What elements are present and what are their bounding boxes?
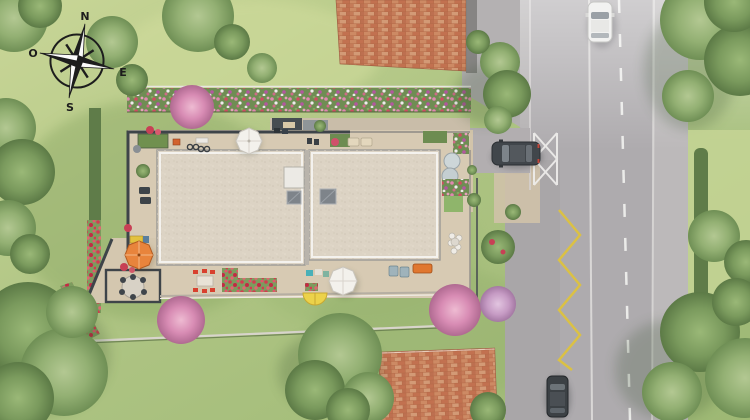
compass-label-east: E bbox=[119, 66, 127, 79]
cushion-seat bbox=[315, 269, 322, 275]
shrub bbox=[481, 230, 515, 264]
planter bbox=[423, 131, 447, 143]
tree-pink-flowering bbox=[429, 284, 481, 336]
lounger bbox=[361, 138, 372, 146]
lounger-dark bbox=[139, 187, 150, 194]
rooftop-access bbox=[284, 167, 304, 188]
flowerbed-red bbox=[305, 283, 318, 291]
flowerbed-northeast bbox=[453, 133, 469, 154]
neighbor-roof-north bbox=[336, 0, 466, 71]
chair bbox=[282, 129, 288, 134]
flowerbed-east bbox=[442, 179, 469, 196]
tree bbox=[86, 16, 138, 68]
bench-orange bbox=[413, 264, 432, 273]
lawn-pocket bbox=[444, 196, 463, 212]
red-flowers bbox=[501, 250, 506, 255]
skylight bbox=[320, 189, 336, 204]
tree-pink-flowering bbox=[157, 296, 205, 344]
lounger-dark bbox=[140, 197, 151, 204]
main-building bbox=[157, 150, 440, 265]
shrub bbox=[467, 165, 477, 175]
red-flowers bbox=[120, 263, 128, 271]
lounger-gray bbox=[389, 266, 398, 276]
table bbox=[283, 122, 295, 128]
shrub bbox=[505, 204, 521, 220]
roof-right-texture bbox=[309, 150, 440, 260]
tree bbox=[466, 30, 490, 54]
red-flowers bbox=[155, 129, 161, 135]
car-parked-drive bbox=[491, 140, 543, 170]
grill-covered bbox=[143, 236, 149, 243]
chair bbox=[274, 128, 280, 133]
chair bbox=[307, 138, 312, 144]
chair bbox=[314, 139, 319, 145]
tree bbox=[662, 70, 714, 122]
car-white-driving bbox=[586, 2, 618, 48]
umbrella-white-north bbox=[236, 128, 262, 156]
shrub bbox=[247, 53, 277, 83]
potted-tree bbox=[314, 120, 326, 132]
tree bbox=[484, 106, 512, 134]
cushion-seat bbox=[306, 270, 313, 276]
red-flowers bbox=[124, 224, 132, 232]
flowerbed-red bbox=[222, 268, 238, 292]
lounger bbox=[348, 138, 359, 146]
tree bbox=[46, 286, 98, 338]
flowerbed-red bbox=[238, 278, 277, 292]
compass-label-south: S bbox=[66, 101, 74, 114]
site-plan-svg: N O E S bbox=[0, 0, 750, 420]
skylight bbox=[287, 191, 301, 204]
planter-pot bbox=[133, 145, 141, 153]
lounger-gray bbox=[400, 267, 409, 277]
potted-tree bbox=[136, 164, 150, 178]
red-flowers bbox=[489, 239, 495, 245]
tree-lilac-flowering bbox=[480, 286, 516, 322]
roof-joint bbox=[305, 150, 309, 265]
bench-white bbox=[196, 138, 208, 143]
site-plan-image: N O E S bbox=[0, 0, 750, 420]
tree bbox=[10, 234, 50, 274]
roof-left-texture bbox=[157, 150, 305, 265]
tree bbox=[642, 362, 702, 420]
compass-label-west: O bbox=[28, 47, 37, 60]
cushion-seat bbox=[323, 271, 329, 277]
tree-pink-flowering bbox=[170, 85, 214, 129]
compass-label-north: N bbox=[80, 10, 89, 23]
barbecue bbox=[173, 139, 180, 145]
shrub bbox=[467, 193, 481, 207]
planter-northwest bbox=[138, 134, 168, 148]
red-flowers bbox=[146, 126, 154, 134]
flower-pot bbox=[331, 138, 339, 146]
tree bbox=[214, 24, 250, 60]
car-parked-street bbox=[545, 375, 571, 420]
